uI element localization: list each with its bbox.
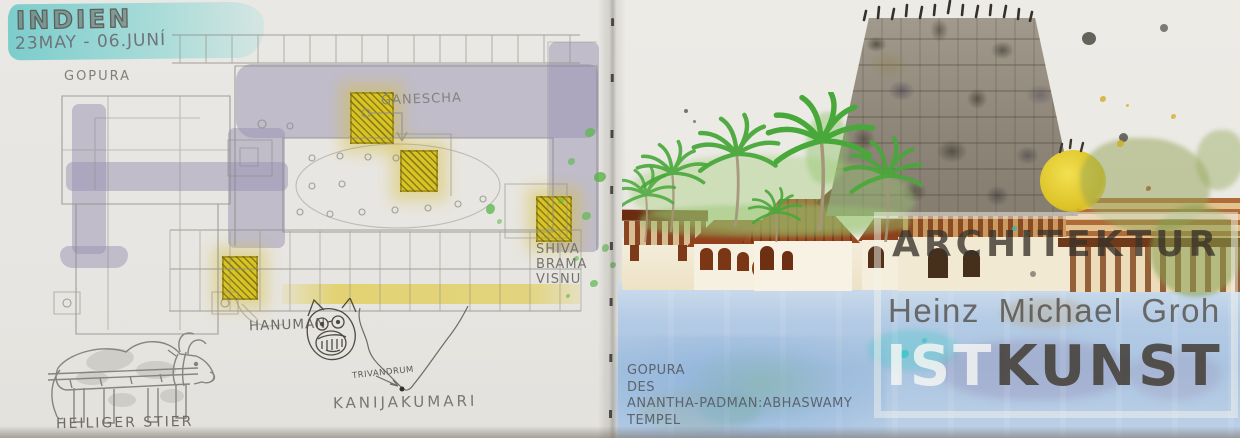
india-map-sketch	[346, 306, 501, 401]
watermark-kunst: KUNST	[994, 334, 1222, 399]
watermark-istkunst: ISTKUNST	[886, 334, 1223, 399]
doorway-arch	[700, 248, 713, 270]
paint-splatter	[684, 109, 688, 113]
trinity-line: VISNU	[536, 272, 587, 287]
doorway-arch	[782, 251, 793, 270]
paint-splatter	[1160, 24, 1168, 32]
doorway-arch	[718, 248, 731, 270]
painting-caption: GOPURA DES ANANTHA-PADMAN:ABHASWAMY TEMP…	[627, 363, 852, 429]
map-cape-label: KANIJAKUMARI	[333, 392, 478, 413]
colonnade-leg	[678, 245, 687, 261]
trinity-line: SHIVA	[536, 242, 587, 257]
caption-line: DES	[627, 380, 852, 397]
dome-finial-marks	[1054, 134, 1090, 154]
caption-line: GOPURA	[627, 363, 852, 380]
caption-line: ANANTHA-PADMAN:ABHASWAMY	[627, 396, 852, 413]
plan-gopura-label: GOPURA	[64, 69, 131, 84]
watermark-architektur: ARCHITEKTUR	[892, 224, 1220, 265]
doorway-arch	[760, 246, 774, 270]
doorway-arch	[737, 252, 749, 271]
paint-splatter	[693, 120, 696, 123]
plan-ganescha-label: GANESCHA	[381, 91, 462, 109]
watermark-ist: IST	[886, 334, 994, 399]
sketchbook-spread: INDIEN 23MAY - 06.JUNÍ	[0, 0, 1240, 438]
plan-trinity-label: SHIVA BRAMA VISNU	[536, 242, 587, 287]
colonnade-leg	[630, 245, 639, 261]
paint-splatter	[1082, 32, 1096, 45]
foliage-wash	[1196, 130, 1240, 190]
tower-finials	[858, 0, 1038, 22]
ganescha-arrow	[362, 109, 407, 141]
page-edge-shadow	[0, 426, 1240, 438]
watermark-artist-name: Heinz Michael Groh	[888, 292, 1221, 330]
trinity-line: BRAMA	[536, 257, 587, 272]
